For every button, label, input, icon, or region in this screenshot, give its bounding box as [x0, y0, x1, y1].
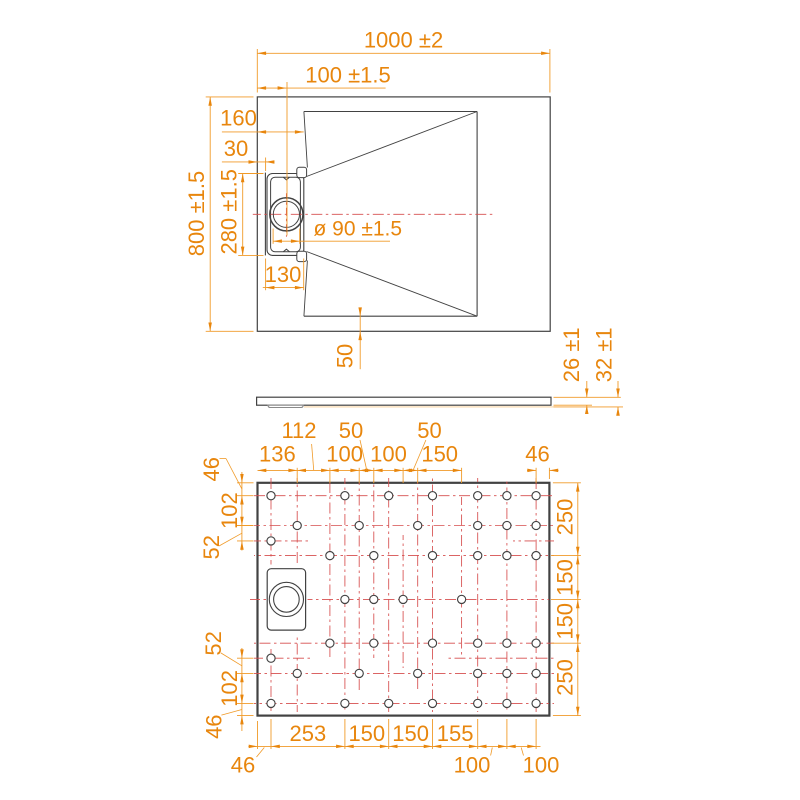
- svg-text:52: 52: [199, 535, 224, 559]
- svg-text:100: 100: [523, 752, 560, 777]
- svg-text:100: 100: [370, 442, 407, 467]
- svg-text:150: 150: [348, 721, 385, 746]
- svg-text:46: 46: [199, 457, 224, 481]
- svg-text:52: 52: [201, 631, 226, 655]
- svg-text:155: 155: [437, 721, 474, 746]
- svg-text:100: 100: [454, 752, 491, 777]
- svg-text:250: 250: [552, 659, 577, 696]
- svg-text:150: 150: [421, 442, 458, 467]
- svg-text:160: 160: [220, 106, 257, 131]
- svg-text:50: 50: [332, 344, 357, 368]
- svg-text:46: 46: [525, 441, 549, 466]
- svg-text:26 ±1: 26 ±1: [559, 327, 584, 382]
- svg-text:ø 90 ±1.5: ø 90 ±1.5: [314, 218, 403, 241]
- svg-text:253: 253: [290, 721, 327, 746]
- svg-text:800 ±1.5: 800 ±1.5: [184, 171, 209, 256]
- svg-text:100 ±1.5: 100 ±1.5: [305, 62, 390, 87]
- svg-text:150: 150: [552, 603, 577, 640]
- svg-text:280 ±1.5: 280 ±1.5: [216, 169, 241, 254]
- svg-text:46: 46: [231, 752, 255, 777]
- svg-text:1000 ±2: 1000 ±2: [364, 28, 443, 53]
- svg-text:136: 136: [259, 442, 296, 467]
- svg-text:150: 150: [392, 721, 429, 746]
- svg-text:250: 250: [552, 499, 577, 536]
- svg-text:150: 150: [552, 559, 577, 596]
- svg-text:50: 50: [339, 418, 363, 443]
- svg-text:100: 100: [326, 442, 363, 467]
- svg-text:50: 50: [417, 418, 441, 443]
- svg-text:46: 46: [201, 714, 226, 738]
- svg-text:130: 130: [265, 262, 302, 287]
- svg-text:102: 102: [217, 492, 242, 529]
- svg-text:32 ±1: 32 ±1: [591, 327, 616, 382]
- svg-text:102: 102: [217, 670, 242, 707]
- svg-text:30: 30: [224, 136, 248, 161]
- svg-text:112: 112: [281, 418, 316, 443]
